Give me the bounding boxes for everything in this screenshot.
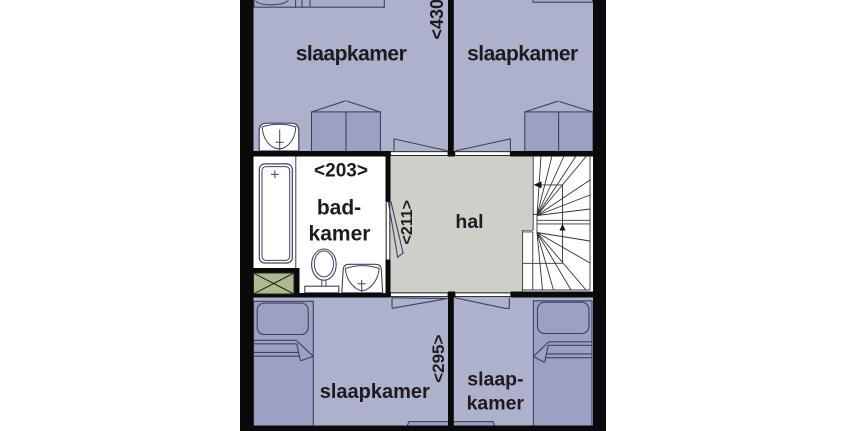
svg-text:bad-: bad- bbox=[317, 197, 361, 220]
svg-text:slaapkamer: slaapkamer bbox=[467, 43, 578, 66]
svg-text:hal: hal bbox=[455, 211, 483, 233]
svg-text:slaapkamer: slaapkamer bbox=[320, 381, 430, 403]
svg-text:slaapkamer: slaapkamer bbox=[296, 43, 407, 66]
svg-text:<430>: <430> bbox=[427, 0, 447, 40]
svg-text:<211>: <211> bbox=[399, 200, 416, 245]
svg-text:kamer: kamer bbox=[309, 222, 371, 245]
svg-text:kamer: kamer bbox=[467, 392, 525, 414]
svg-text:slaap-: slaap- bbox=[467, 369, 523, 391]
svg-text:<295>: <295> bbox=[429, 335, 448, 383]
svg-text:<203>: <203> bbox=[314, 160, 368, 181]
